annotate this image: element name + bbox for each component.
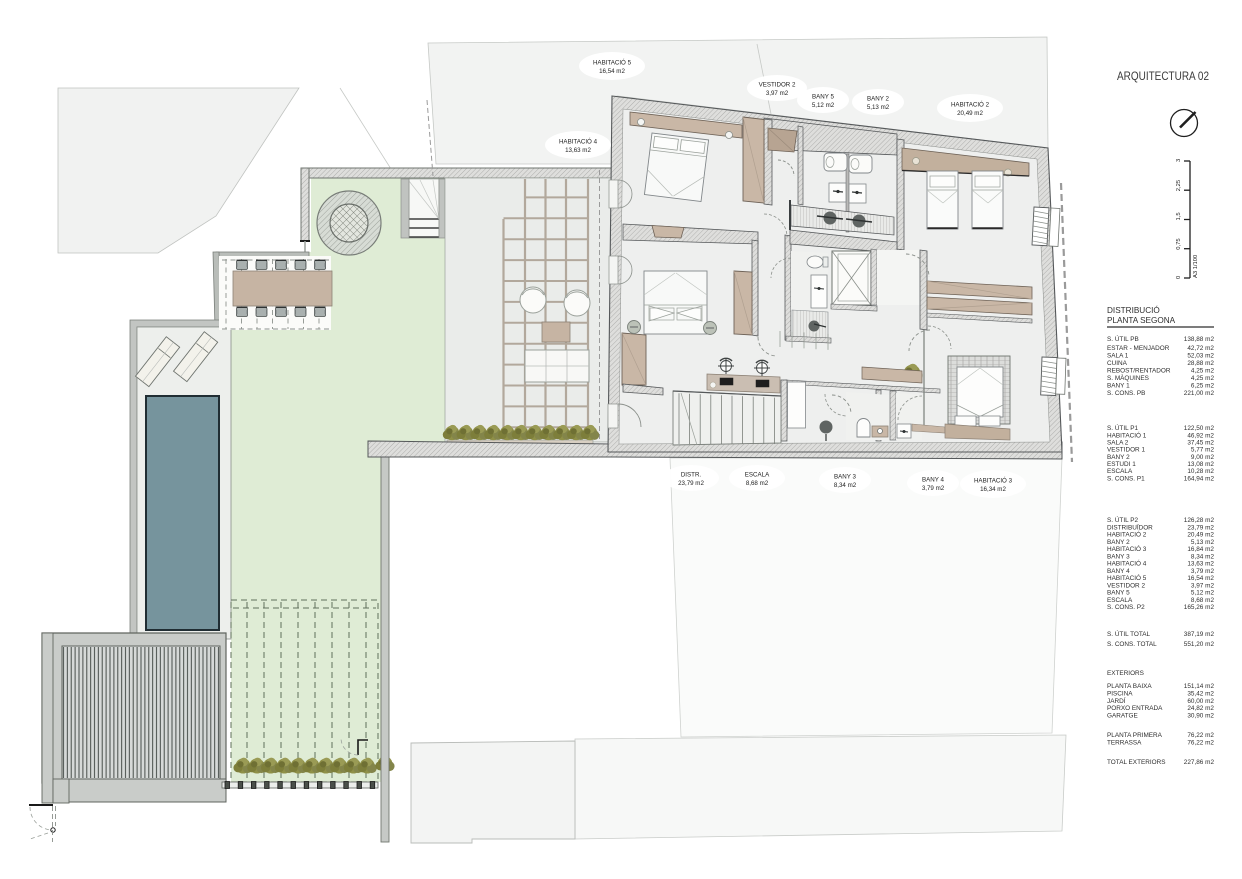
- svg-text:60,00 m2: 60,00 m2: [1187, 698, 1214, 705]
- svg-text:PLANTA SEGONA: PLANTA SEGONA: [1107, 316, 1176, 325]
- svg-text:ARQUITECTURA 02: ARQUITECTURA 02: [1117, 71, 1209, 83]
- svg-text:BANY 2: BANY 2: [1107, 454, 1130, 461]
- svg-text:28,88 m2: 28,88 m2: [1187, 360, 1214, 367]
- svg-text:DISTR.: DISTR.: [681, 472, 702, 479]
- svg-text:S. CONS. TOTAL: S. CONS. TOTAL: [1107, 641, 1157, 648]
- svg-text:5,12 m2: 5,12 m2: [1191, 590, 1215, 597]
- svg-text:551,20 m2: 551,20 m2: [1184, 641, 1215, 648]
- svg-text:BANY 1: BANY 1: [1107, 383, 1130, 390]
- svg-text:ESCALA: ESCALA: [1107, 468, 1133, 475]
- svg-text:6,25 m2: 6,25 m2: [1191, 383, 1215, 390]
- svg-text:JARDÍ: JARDÍ: [1107, 696, 1126, 705]
- svg-text:EXTERIORS: EXTERIORS: [1107, 670, 1144, 677]
- svg-text:TERRASSA: TERRASSA: [1107, 740, 1142, 747]
- svg-text:24,82 m2: 24,82 m2: [1187, 705, 1214, 712]
- svg-text:23,79 m2: 23,79 m2: [678, 480, 704, 487]
- svg-text:HABITACIÓ 3: HABITACIÓ 3: [974, 478, 1013, 485]
- svg-text:S. CONS. P1: S. CONS. P1: [1107, 476, 1145, 483]
- svg-text:DISTRIBUÏDOR: DISTRIBUÏDOR: [1107, 524, 1153, 532]
- svg-text:BANY 4: BANY 4: [1107, 568, 1130, 575]
- svg-text:4,25 m2: 4,25 m2: [1191, 368, 1215, 375]
- svg-text:5,12 m2: 5,12 m2: [812, 102, 835, 109]
- svg-text:BANY 2: BANY 2: [867, 96, 889, 103]
- svg-text:23,79 m2: 23,79 m2: [1187, 525, 1214, 532]
- svg-text:PISCINA: PISCINA: [1107, 691, 1133, 698]
- svg-text:151,14 m2: 151,14 m2: [1184, 683, 1215, 690]
- svg-text:HABITACIÓ 2: HABITACIÓ 2: [951, 102, 990, 109]
- svg-text:HABITACIÓ 5: HABITACIÓ 5: [593, 60, 632, 67]
- svg-text:SALA 2: SALA 2: [1107, 440, 1129, 447]
- svg-text:BANY 5: BANY 5: [812, 94, 834, 101]
- svg-text:52,03 m2: 52,03 m2: [1187, 353, 1214, 360]
- svg-text:76,22 m2: 76,22 m2: [1187, 740, 1214, 747]
- svg-text:CUINA: CUINA: [1107, 360, 1128, 367]
- svg-text:16,84 m2: 16,84 m2: [1187, 546, 1214, 553]
- svg-text:76,22 m2: 76,22 m2: [1187, 732, 1214, 739]
- svg-text:8,68 m2: 8,68 m2: [746, 480, 769, 487]
- svg-text:VESTIDOR 2: VESTIDOR 2: [1107, 583, 1145, 590]
- svg-text:20,49 m2: 20,49 m2: [957, 110, 983, 117]
- svg-text:REBOST/RENTADOR: REBOST/RENTADOR: [1107, 368, 1171, 375]
- svg-text:VESTIDOR 1: VESTIDOR 1: [1107, 447, 1145, 454]
- svg-text:0: 0: [1176, 276, 1182, 279]
- svg-text:387,19 m2: 387,19 m2: [1184, 631, 1215, 638]
- svg-text:164,94 m2: 164,94 m2: [1184, 476, 1215, 483]
- svg-text:3,79 m2: 3,79 m2: [922, 485, 945, 492]
- svg-text:S. CONS. PB: S. CONS. PB: [1107, 390, 1145, 397]
- svg-text:20,49 m2: 20,49 m2: [1187, 532, 1214, 539]
- svg-text:ESCALA: ESCALA: [1107, 597, 1133, 604]
- svg-text:PORXO ENTRADA: PORXO ENTRADA: [1107, 705, 1163, 712]
- svg-text:HABITACIÓ 1: HABITACIÓ 1: [1107, 431, 1147, 440]
- svg-text:5,77 m2: 5,77 m2: [1191, 447, 1215, 454]
- svg-text:138,88 m2: 138,88 m2: [1184, 336, 1215, 343]
- svg-text:BANY 3: BANY 3: [834, 474, 856, 481]
- svg-text:HABITACIÓ 3: HABITACIÓ 3: [1107, 544, 1147, 553]
- svg-text:HABITACIÓ 4: HABITACIÓ 4: [1107, 559, 1147, 568]
- svg-text:ESCALA: ESCALA: [745, 472, 770, 479]
- svg-text:S. ÚTIL PB: S. ÚTIL PB: [1107, 334, 1139, 343]
- svg-text:5,13 m2: 5,13 m2: [867, 104, 890, 111]
- svg-text:10,28 m2: 10,28 m2: [1187, 468, 1214, 475]
- svg-text:8,68 m2: 8,68 m2: [1191, 597, 1215, 604]
- svg-text:3,97 m2: 3,97 m2: [766, 90, 789, 97]
- svg-text:ESTAR - MENJADOR: ESTAR - MENJADOR: [1107, 345, 1170, 352]
- svg-text:8,34 m2: 8,34 m2: [1191, 554, 1215, 561]
- svg-text:221,00 m2: 221,00 m2: [1184, 390, 1215, 397]
- svg-text:GARATGE: GARATGE: [1107, 713, 1138, 720]
- svg-text:0,75: 0,75: [1176, 238, 1182, 249]
- svg-text:122,50 m2: 122,50 m2: [1184, 425, 1215, 432]
- svg-text:BANY 3: BANY 3: [1107, 554, 1130, 561]
- svg-text:5,13 m2: 5,13 m2: [1191, 539, 1215, 546]
- svg-text:9,00 m2: 9,00 m2: [1191, 454, 1215, 461]
- svg-text:HABITACIÓ 5: HABITACIÓ 5: [1107, 573, 1147, 582]
- svg-text:TOTAL EXTERIORS: TOTAL EXTERIORS: [1107, 759, 1165, 766]
- svg-text:BANY 2: BANY 2: [1107, 539, 1130, 546]
- svg-text:13,63 m2: 13,63 m2: [565, 147, 591, 154]
- svg-text:3,79 m2: 3,79 m2: [1191, 568, 1215, 575]
- svg-text:VESTIDOR 2: VESTIDOR 2: [759, 82, 796, 89]
- svg-text:BANY 5: BANY 5: [1107, 590, 1130, 597]
- svg-text:S. ÚTIL P1: S. ÚTIL P1: [1107, 423, 1138, 432]
- svg-text:1,5: 1,5: [1176, 212, 1182, 220]
- svg-text:16,54 m2: 16,54 m2: [599, 68, 625, 75]
- svg-text:HABITACIÓ 4: HABITACIÓ 4: [559, 139, 598, 146]
- svg-text:BANY 4: BANY 4: [922, 477, 944, 484]
- svg-text:16,54 m2: 16,54 m2: [1187, 575, 1214, 582]
- svg-text:16,34 m2: 16,34 m2: [980, 486, 1006, 493]
- svg-text:227,86 m2: 227,86 m2: [1184, 759, 1215, 766]
- svg-text:S. ÚTIL TOTAL: S. ÚTIL TOTAL: [1107, 629, 1151, 638]
- svg-text:ESTUDI 1: ESTUDI 1: [1107, 461, 1136, 468]
- svg-text:4,25 m2: 4,25 m2: [1191, 375, 1215, 382]
- svg-text:HABITACIÓ 2: HABITACIÓ 2: [1107, 530, 1147, 539]
- svg-text:3: 3: [1176, 159, 1182, 162]
- svg-text:165,26 m2: 165,26 m2: [1184, 604, 1215, 611]
- svg-text:35,42 m2: 35,42 m2: [1187, 691, 1214, 698]
- svg-text:13,08 m2: 13,08 m2: [1187, 461, 1214, 468]
- svg-text:8,34 m2: 8,34 m2: [834, 482, 857, 489]
- svg-text:13,63 m2: 13,63 m2: [1187, 561, 1214, 568]
- svg-text:2,25: 2,25: [1176, 180, 1182, 191]
- svg-text:42,72 m2: 42,72 m2: [1187, 345, 1214, 352]
- svg-text:DISTRIBUCIÓ: DISTRIBUCIÓ: [1107, 305, 1160, 315]
- svg-text:30,90 m2: 30,90 m2: [1187, 713, 1214, 720]
- svg-text:A3 1/100: A3 1/100: [1193, 255, 1199, 278]
- svg-text:37,45 m2: 37,45 m2: [1187, 440, 1214, 447]
- svg-text:PLANTA PRIMERA: PLANTA PRIMERA: [1107, 732, 1163, 739]
- svg-text:S. ÚTIL P2: S. ÚTIL P2: [1107, 515, 1138, 524]
- svg-text:3,97 m2: 3,97 m2: [1191, 583, 1215, 590]
- svg-text:S. CONS. P2: S. CONS. P2: [1107, 604, 1145, 611]
- svg-text:S. MÀQUINES: S. MÀQUINES: [1107, 373, 1149, 382]
- svg-text:PLANTA BAIXA: PLANTA BAIXA: [1107, 683, 1152, 690]
- svg-text:46,92 m2: 46,92 m2: [1187, 433, 1214, 440]
- svg-text:SALA 1: SALA 1: [1107, 353, 1129, 360]
- svg-text:126,28 m2: 126,28 m2: [1184, 517, 1215, 524]
